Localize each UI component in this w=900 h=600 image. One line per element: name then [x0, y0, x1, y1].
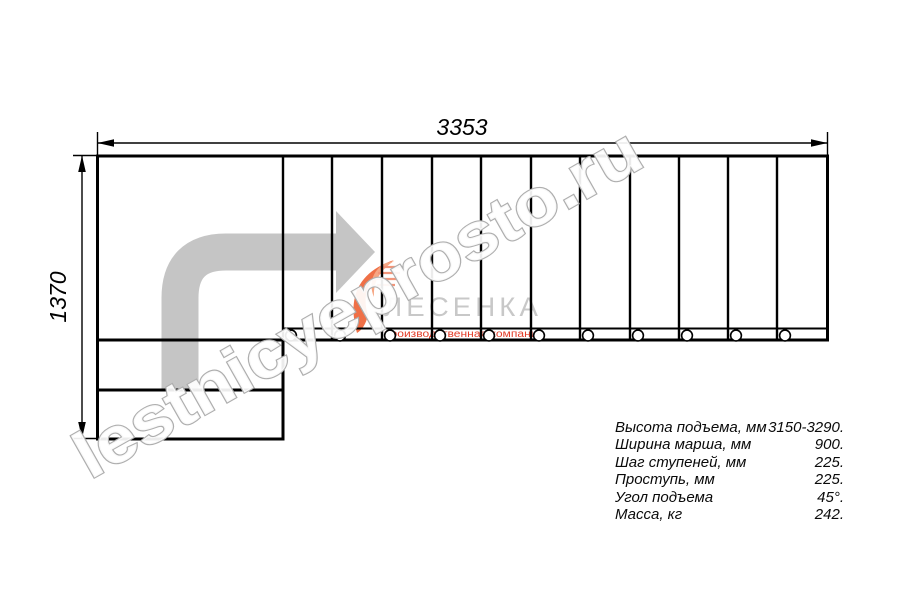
fastener-circle — [583, 330, 594, 341]
spec-row: Ширина марша, мм 900. — [615, 436, 844, 453]
spec-label: Масса, кг — [615, 506, 682, 523]
fastener-circle — [484, 330, 495, 341]
fastener-circle — [534, 330, 545, 341]
spec-row: Высота подъема, мм 3150-3290. — [615, 419, 844, 436]
fastener-circle — [780, 330, 791, 341]
spec-value: 242. — [815, 506, 844, 523]
spec-value: 225. — [815, 454, 844, 471]
spec-label: Угол подъема — [615, 489, 713, 506]
spec-label: Высота подъема, мм — [615, 419, 767, 436]
spec-label: Шаг ступеней, мм — [615, 454, 746, 471]
dimension-left: 1370 — [45, 156, 97, 439]
spec-value: 3150-3290. — [768, 419, 844, 436]
spec-label: Проступь, мм — [615, 471, 715, 488]
fastener-circle — [385, 330, 396, 341]
spec-row: Масса, кг 242. — [615, 506, 844, 523]
dimension-width-label: 3353 — [436, 114, 487, 140]
stair-plan-page: ЛЕСЕНКА производственная компания 3353 — [0, 0, 900, 600]
fastener-circle — [731, 330, 742, 341]
dimension-height-label: 1370 — [45, 271, 71, 322]
spec-value: 900. — [815, 436, 844, 453]
dimension-top: 3353 — [98, 114, 828, 155]
spec-row: Угол подъема 45°. — [615, 489, 844, 506]
specs-table: Высота подъема, мм 3150-3290. Ширина мар… — [615, 419, 844, 523]
fastener-circle — [633, 330, 644, 341]
spec-value: 225. — [815, 471, 844, 488]
fastener-circle — [435, 330, 446, 341]
spec-row: Шаг ступеней, мм 225. — [615, 454, 844, 471]
logo-tagline: производственная компания — [384, 329, 544, 340]
watermark-text: lestnicyeprosto.ru — [60, 113, 653, 493]
dimension-arrow-left-icon — [98, 139, 115, 147]
spec-value: 45°. — [817, 489, 844, 506]
fastener-circle — [682, 330, 693, 341]
spec-label: Ширина марша, мм — [615, 436, 751, 453]
dimension-arrow-up-icon — [78, 156, 86, 173]
spec-row: Проступь, мм 225. — [615, 471, 844, 488]
dimension-arrow-right-icon — [811, 139, 828, 147]
